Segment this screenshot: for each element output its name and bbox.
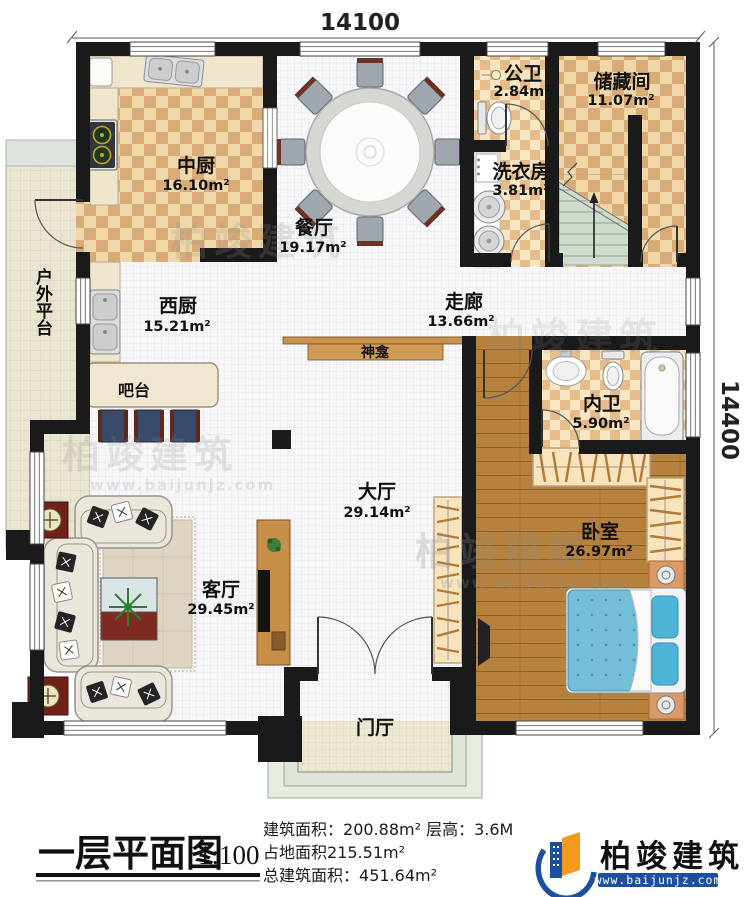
plan-scale: 1:100 <box>198 840 260 870</box>
tv <box>258 570 270 632</box>
watermark-text: 柏竣建筑 <box>62 433 238 477</box>
svg-text:建筑面积：200.88m² 层高：3.6M: 建筑面积：200.88m² 层高：3.6M <box>263 820 513 839</box>
floor-plan-page: 柏竣建筑 柏竣建筑 柏竣建筑 www.baijunjz.com 柏竣建筑 www… <box>0 0 750 897</box>
total-area-value: 451.64m² <box>359 866 437 885</box>
room-label-hall: 大厅 <box>358 480 396 503</box>
room-label-wc-public: 公卫 <box>504 63 542 85</box>
watermark-url: www.baijunjz.com <box>90 476 275 494</box>
tv-cabinet <box>257 520 290 665</box>
room-label-storage: 储藏间 <box>593 70 650 93</box>
building-area-label: 建筑面积： <box>263 820 343 839</box>
plan-title: 一层平面图 <box>38 834 223 875</box>
label-shrine: 神龛 <box>361 344 390 361</box>
room-label-laundry: 洗衣房 <box>492 160 549 183</box>
watermark-url: www.baijunjz.com <box>440 574 625 592</box>
room-area-bedroom: 26.97m² <box>565 544 632 560</box>
room-area-bath: 5.90m² <box>572 416 629 432</box>
coffee-table <box>101 578 157 640</box>
watermark-text: 柏竣建筑 <box>487 315 663 359</box>
room-area-laundry: 3.81m² <box>492 183 549 199</box>
bathtub <box>641 352 683 444</box>
room-area-kitchen-cn: 16.10m² <box>162 178 229 194</box>
room-label-kitchen-west: 西厨 <box>159 295 197 317</box>
room-area-dining: 19.17m² <box>279 240 346 256</box>
svg-text:总建筑面积：451.64m²: 总建筑面积：451.64m² <box>263 866 437 885</box>
room-area-wc-public: 2.84m² <box>493 84 550 100</box>
west-sink <box>90 290 120 354</box>
room-area-hall: 29.14m² <box>343 505 410 521</box>
floor-height-label: 层高： <box>421 820 474 839</box>
logo-building-icon <box>562 832 580 876</box>
room-label-bath: 内卫 <box>583 392 621 415</box>
column <box>272 430 291 449</box>
floor-height-value: 3.6M <box>474 820 513 839</box>
kitchen-sink <box>144 54 205 87</box>
land-area-label: 占地面积 <box>263 843 327 862</box>
building-area-value: 200.88m² <box>343 820 421 839</box>
label-bar: 吧台 <box>118 381 150 400</box>
room-area-kitchen-west: 15.21m² <box>143 319 210 335</box>
svg-text:占地面积215.51m²: 占地面积215.51m² <box>263 843 405 862</box>
brand-url: www.baijunjz.com <box>595 873 722 887</box>
brand-name: 柏竣建筑 <box>600 839 744 875</box>
room-label-living: 客厅 <box>202 578 240 601</box>
fridge <box>90 58 112 86</box>
room-label-corridor: 走廊 <box>445 290 483 313</box>
room-label-dining: 餐厅 <box>295 216 333 239</box>
room-area-living: 29.45m² <box>187 602 254 618</box>
room-area-corridor: 13.66m² <box>427 314 494 330</box>
pillow <box>652 643 678 685</box>
land-area-value: 215.51m² <box>327 843 405 862</box>
dim-height: 14400 <box>716 380 742 460</box>
pillow <box>652 596 678 638</box>
bed <box>566 588 686 693</box>
staircase <box>557 163 632 265</box>
wc-drain <box>492 71 501 80</box>
room-label-bedroom: 卧室 <box>581 520 619 543</box>
room-area-storage: 11.07m² <box>587 93 654 109</box>
bedroom-tv <box>478 618 490 666</box>
floor-plan-canvas: 柏竣建筑 柏竣建筑 柏竣建筑 www.baijunjz.com 柏竣建筑 www… <box>0 0 750 897</box>
total-area-label: 总建筑面积： <box>263 866 359 885</box>
room-label-foyer: 门厅 <box>356 716 394 739</box>
closet-right <box>647 478 684 562</box>
label-outdoor-platform: 户外平台 <box>32 267 53 337</box>
stove <box>87 120 117 170</box>
dim-width: 14100 <box>320 10 400 36</box>
room-label-kitchen-cn: 中厨 <box>177 154 215 177</box>
bar-counter <box>86 363 218 407</box>
toilet <box>478 102 486 134</box>
